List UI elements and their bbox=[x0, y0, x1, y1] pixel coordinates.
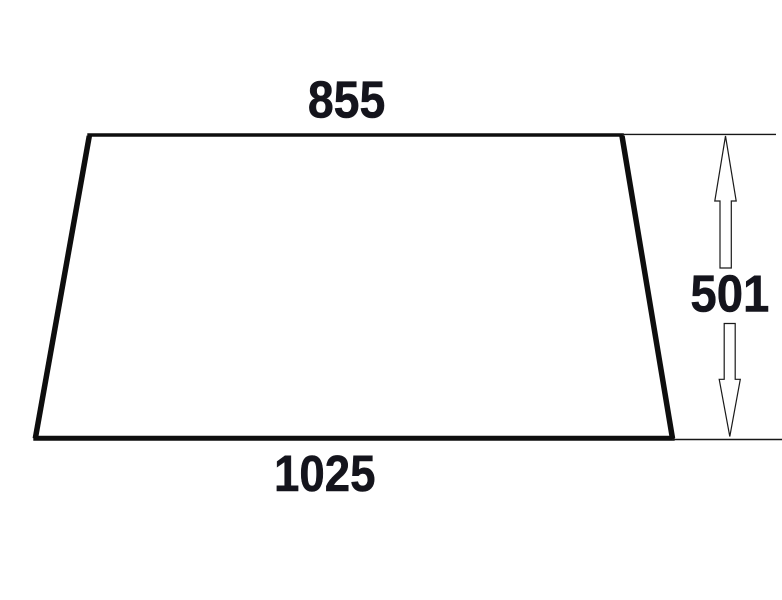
svg-text:501: 501 bbox=[690, 265, 769, 323]
svg-text:855: 855 bbox=[308, 72, 386, 130]
svg-text:1025: 1025 bbox=[274, 445, 376, 502]
